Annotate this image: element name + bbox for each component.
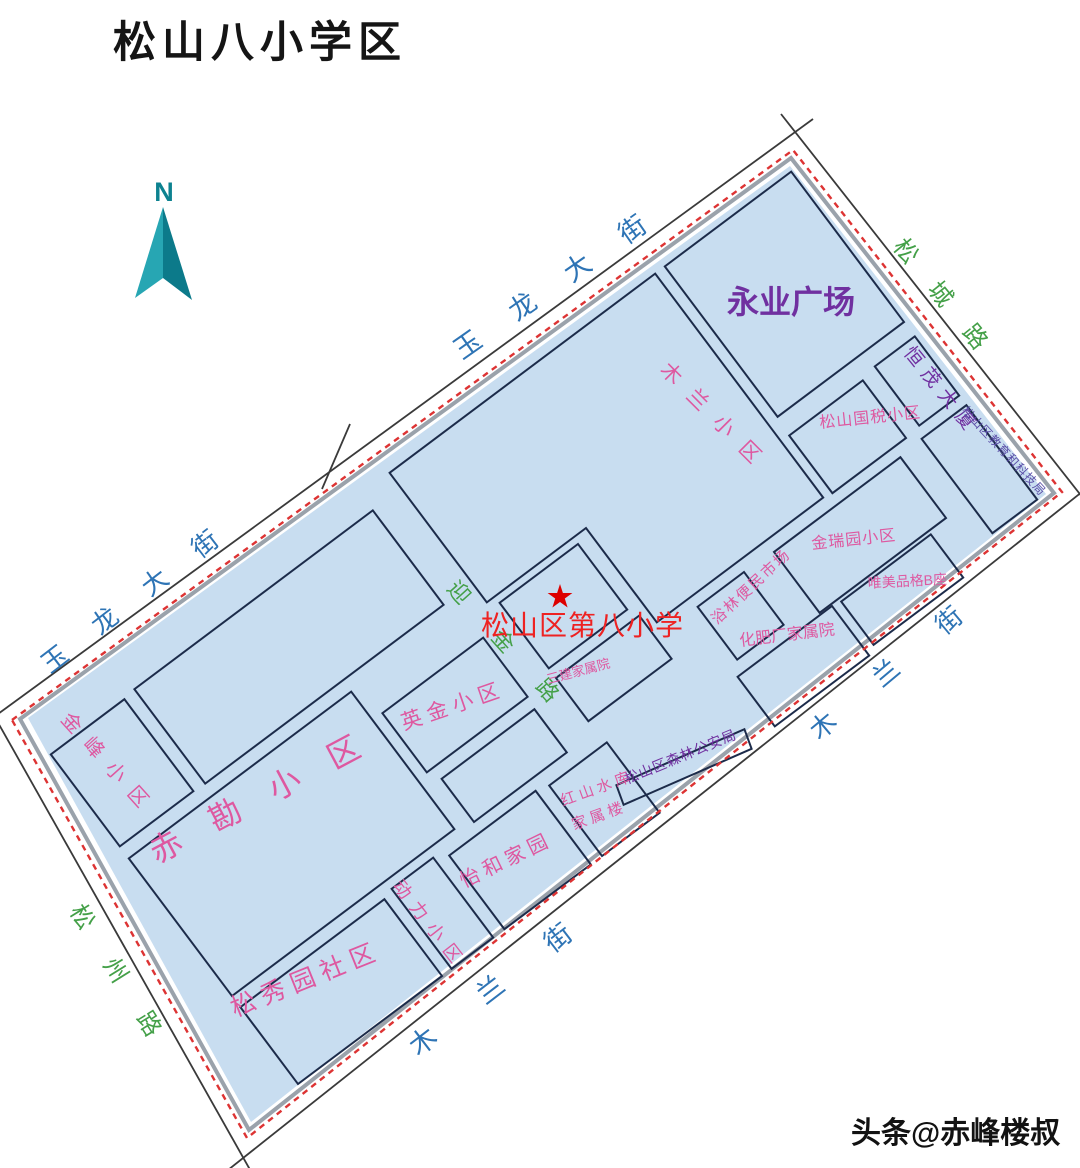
- north-arrow: N: [135, 177, 192, 300]
- street-stub-north: [322, 424, 350, 489]
- school-district-map: 玉龙大街 玉龙大街 松城路 木兰街 木兰街 松州路 迎金路 永业广场 恒茂大厦 …: [0, 0, 1080, 1168]
- place-label-yongye-plaza: 永业广场: [727, 284, 855, 320]
- school-name-label: 松山区第八小学: [481, 610, 684, 641]
- north-arrow-label: N: [154, 177, 174, 207]
- watermark: 头条@赤峰楼叔: [851, 1117, 1060, 1150]
- north-arrow-icon: [135, 207, 163, 298]
- page-title: 松山八小学区: [113, 19, 407, 67]
- north-arrow-icon-dark-half: [163, 207, 192, 300]
